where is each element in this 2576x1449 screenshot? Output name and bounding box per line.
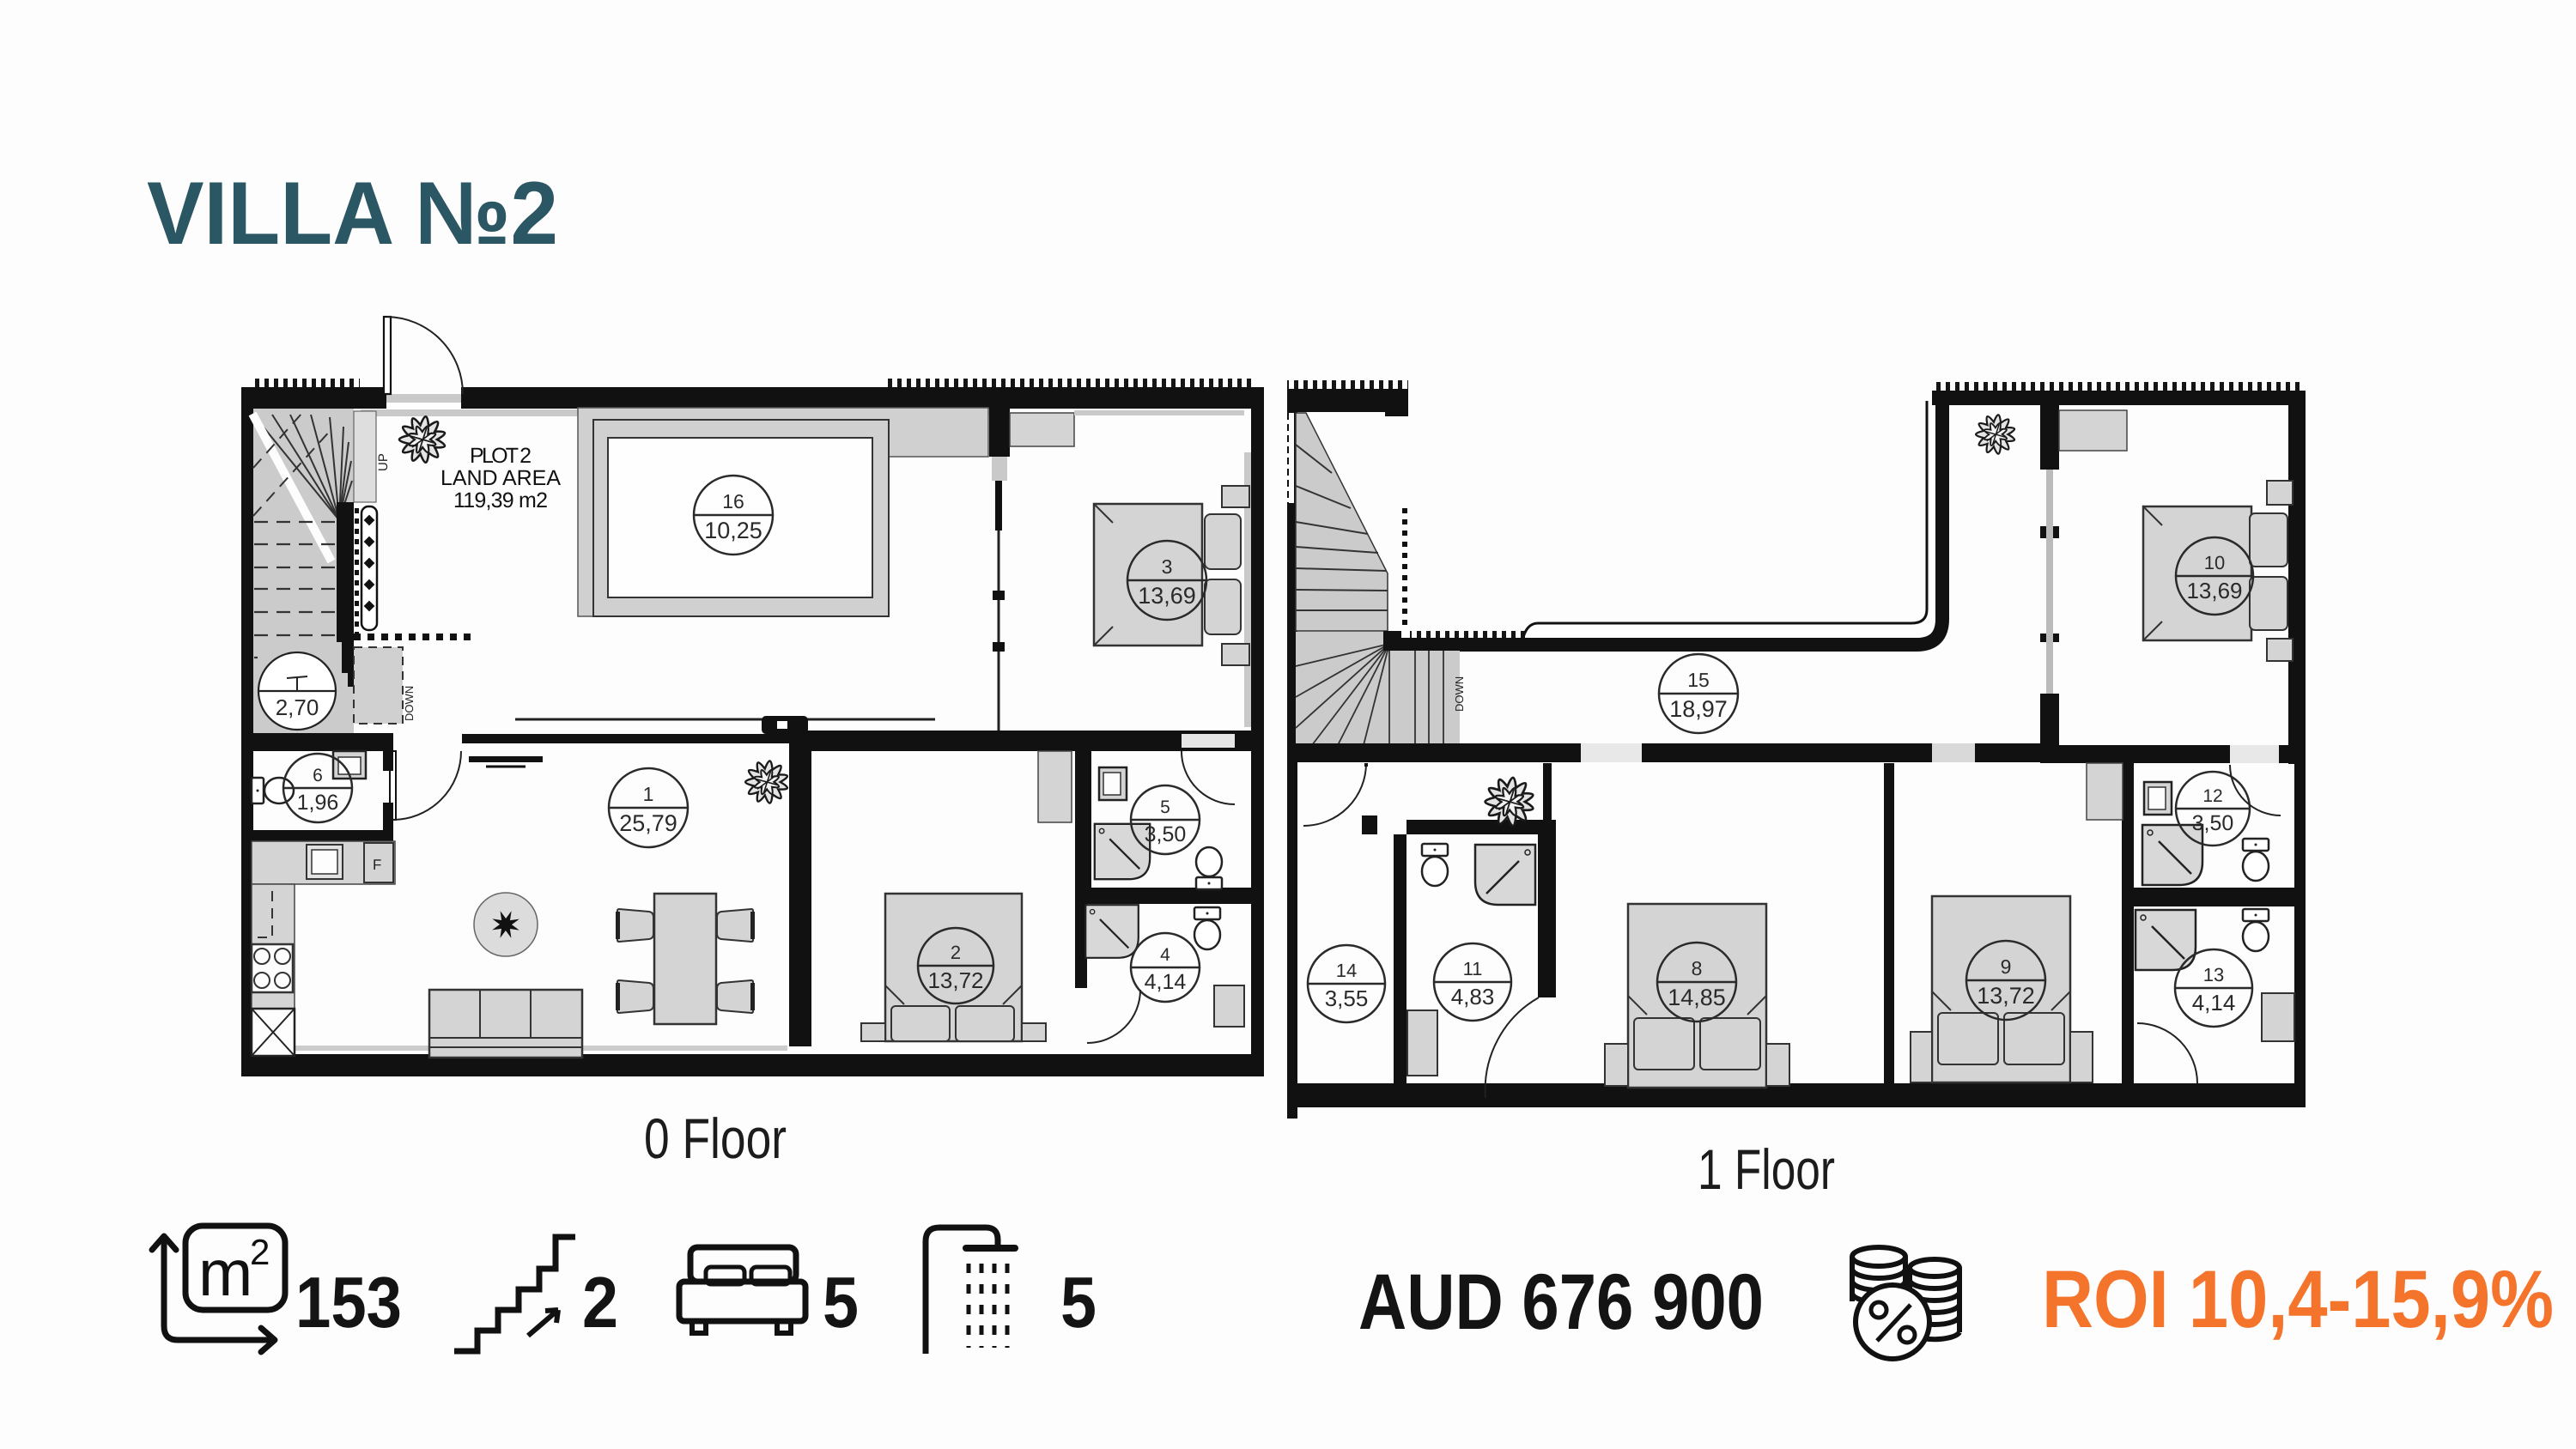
svg-text:1,96: 1,96	[297, 791, 339, 815]
svg-text:PLOT 2: PLOT 2	[470, 444, 532, 468]
svg-text:8: 8	[1692, 957, 1703, 979]
svg-text:3,50: 3,50	[1145, 822, 1187, 846]
svg-text:DOWN: DOWN	[403, 686, 416, 721]
svg-text:F: F	[373, 857, 381, 873]
svg-text:153: 153	[295, 1262, 402, 1343]
svg-text:4,14: 4,14	[1145, 970, 1187, 994]
svg-text:14: 14	[1336, 960, 1357, 981]
svg-text:4: 4	[1160, 945, 1170, 965]
svg-text:ROI 10,4-15,9%: ROI 10,4-15,9%	[2042, 1254, 2554, 1345]
svg-text:VILLA №2: VILLA №2	[147, 164, 558, 264]
svg-text:13,69: 13,69	[1138, 583, 1196, 609]
svg-text:25,79: 25,79	[619, 810, 677, 836]
svg-text:18,97: 18,97	[1669, 696, 1728, 722]
svg-text:2: 2	[250, 1232, 270, 1272]
svg-text:1: 1	[643, 783, 654, 805]
svg-text:5: 5	[823, 1262, 859, 1343]
svg-text:12: 12	[2202, 786, 2222, 806]
svg-text:15: 15	[1687, 669, 1710, 691]
svg-text:9: 9	[2001, 955, 2012, 978]
svg-text:UP: UP	[376, 453, 391, 471]
svg-text:m: m	[198, 1237, 252, 1310]
svg-text:2: 2	[951, 942, 961, 963]
svg-text:2: 2	[582, 1262, 618, 1343]
svg-text:13,72: 13,72	[1977, 983, 2035, 1009]
svg-text:10,25: 10,25	[704, 518, 762, 543]
svg-text:6: 6	[313, 766, 323, 785]
svg-text:4,14: 4,14	[2192, 990, 2236, 1016]
svg-text:13: 13	[2203, 964, 2224, 985]
svg-text:5: 5	[1160, 797, 1170, 817]
svg-text:3: 3	[1162, 555, 1173, 578]
svg-text:10: 10	[2204, 552, 2225, 573]
svg-text:13,72: 13,72	[927, 967, 983, 993]
svg-text:DOWN: DOWN	[1453, 676, 1466, 712]
svg-text:0 Floor: 0 Floor	[644, 1106, 787, 1170]
svg-text:2,70: 2,70	[276, 694, 319, 720]
svg-text:3,55: 3,55	[1325, 985, 1369, 1011]
svg-text:4,83: 4,83	[1451, 984, 1495, 1009]
svg-text:1 Floor: 1 Floor	[1698, 1137, 1835, 1201]
svg-text:11: 11	[1463, 958, 1483, 979]
svg-text:AUD 676 900: AUD 676 900	[1358, 1258, 1764, 1346]
svg-text:14,85: 14,85	[1668, 985, 1726, 1010]
svg-text:3,50: 3,50	[2192, 811, 2234, 835]
svg-text:16: 16	[722, 490, 744, 512]
svg-text:13,69: 13,69	[2186, 578, 2242, 603]
svg-text:5: 5	[1060, 1262, 1097, 1343]
svg-text:LAND AREA: LAND AREA	[440, 466, 561, 490]
svg-text:119,39 m2: 119,39 m2	[453, 488, 548, 512]
